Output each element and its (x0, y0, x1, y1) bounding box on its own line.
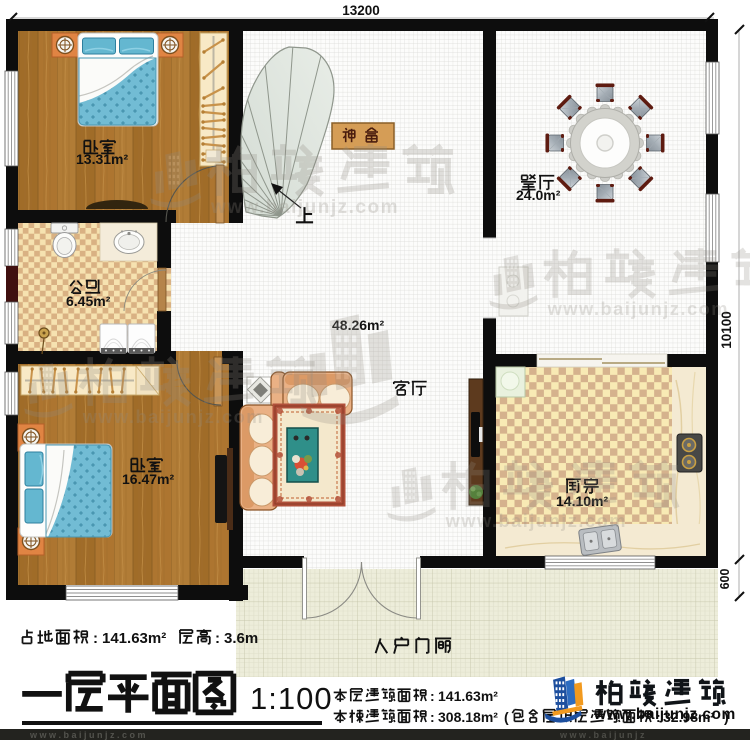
svg-text:w w w . b a i j u n j z . c o: w w w . b a i j u n j z . c o m (29, 730, 146, 740)
svg-text:24.0m²: 24.0m² (516, 187, 561, 203)
svg-text:141.63m²: 141.63m² (438, 688, 498, 704)
svg-text:3.6m: 3.6m (224, 630, 258, 647)
svg-text:www.baijunjz.com: www.baijunjz.com (445, 510, 627, 531)
svg-text:6.45m²: 6.45m² (66, 293, 111, 309)
svg-text:w w w . b a i j u n j z: w w w . b a i j u n j z (559, 730, 645, 740)
svg-text:1:100: 1:100 (250, 681, 333, 716)
svg-text::: : (430, 709, 435, 725)
svg-text:www.baijunjz.com: www.baijunjz.com (82, 406, 264, 427)
svg-text::: : (93, 630, 98, 647)
svg-text:141.63m²: 141.63m² (102, 630, 166, 647)
svg-text:13.31m²: 13.31m² (76, 151, 128, 167)
svg-text:www.baijunjz.com: www.baijunjz.com (210, 197, 399, 218)
svg-text:13200: 13200 (342, 3, 380, 18)
svg-text:600: 600 (718, 569, 732, 590)
svg-text:16.47m²: 16.47m² (122, 471, 174, 487)
svg-text:308.18m²: 308.18m² (438, 709, 498, 725)
svg-text:(: ( (504, 709, 509, 725)
svg-text:www.baijunjz.com: www.baijunjz.com (547, 298, 729, 319)
svg-text::: : (430, 688, 435, 704)
svg-text::: : (215, 630, 220, 647)
svg-text:www.baijunjz.com: www.baijunjz.com (593, 706, 736, 723)
